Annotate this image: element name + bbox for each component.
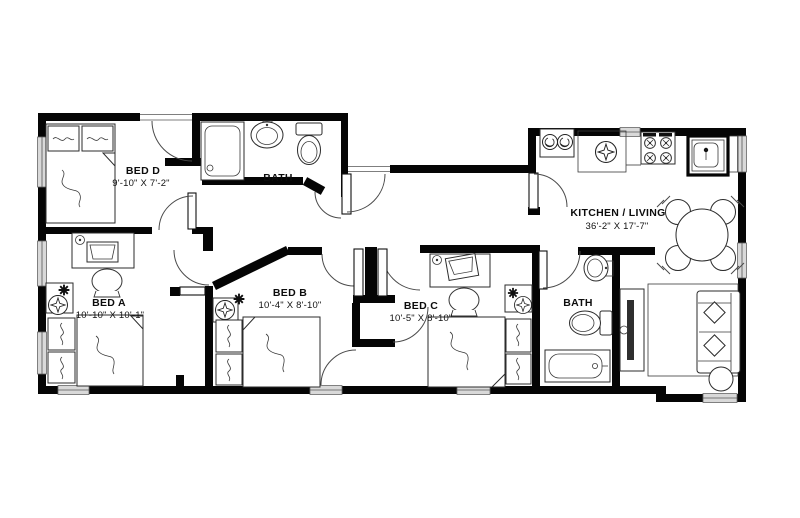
door-bed-b	[322, 254, 354, 286]
label-bed-d: BED D	[126, 165, 160, 177]
door-bed-d-inner	[159, 193, 196, 230]
stove-icon	[641, 132, 675, 164]
side-table-icon	[213, 294, 244, 322]
bed-icon	[428, 317, 531, 387]
toilet-icon	[570, 311, 613, 335]
bathtub-icon	[545, 350, 610, 382]
window-icon	[738, 243, 747, 278]
window-icon	[620, 128, 640, 137]
living-area	[620, 284, 740, 391]
bed-icon	[48, 315, 143, 386]
label-bed-a: BED A	[92, 297, 126, 309]
cooktop-fan-icon	[596, 142, 617, 163]
plant-icon	[234, 294, 245, 305]
door-bath-right	[539, 251, 580, 289]
room-bath-top	[201, 121, 322, 180]
floor-plan: BED D 9'-10" X 7'-2" BATH BED A 10'-10" …	[0, 0, 800, 518]
door-kitchen	[529, 173, 567, 209]
sink-icon	[584, 255, 613, 281]
door-bath-top	[315, 192, 341, 218]
side-table-icon	[505, 285, 532, 314]
washer-dryer-icon	[540, 129, 574, 157]
dims-bed-d: 9'-10" X 7'-2"	[112, 178, 170, 189]
side-table-icon	[46, 283, 73, 315]
ceiling-fan-icon	[515, 297, 532, 314]
toilet-icon	[296, 123, 322, 165]
door-unit-entry	[342, 167, 390, 215]
room-bath-right	[545, 255, 613, 382]
shower-icon	[201, 122, 244, 180]
ceiling-fan-icon	[216, 301, 235, 320]
label-bath-top: BATH	[263, 172, 293, 184]
label-bed-c: BED C	[404, 300, 438, 312]
side-table-icon	[709, 367, 733, 391]
bed-icon	[46, 124, 115, 223]
desk-icon	[430, 254, 490, 316]
door-bed-d-entry	[140, 115, 192, 162]
bed-icon	[216, 317, 320, 387]
tv-console-icon	[620, 289, 644, 371]
window-icon	[58, 386, 89, 395]
door-bed-c	[382, 252, 420, 290]
dims-bed-b: 10'-4" X 8'-10"	[258, 300, 321, 311]
window-icon	[38, 332, 47, 374]
ceiling-fan-icon	[49, 296, 68, 315]
dims-bed-a: 10'-10" X 10'-1"	[76, 310, 145, 321]
dining-table-icon	[676, 209, 728, 261]
sink-icon	[251, 121, 283, 148]
dims-bed-c: 10'-5" X 8'-10"	[389, 313, 452, 324]
dims-kitchen-living: 36'-2" X 17'-7"	[585, 221, 648, 232]
door-closet-bed-b	[321, 350, 356, 385]
sofa-icon	[697, 291, 740, 373]
room-bed-d	[46, 124, 115, 223]
desk-icon	[72, 233, 134, 297]
window-icon	[38, 137, 47, 187]
floor-plan-canvas: BED D 9'-10" X 7'-2" BATH BED A 10'-10" …	[0, 0, 800, 518]
window-icon	[38, 241, 47, 286]
label-bed-b: BED B	[273, 287, 307, 299]
dining-set	[657, 196, 744, 274]
label-bath-right: BATH	[563, 297, 593, 309]
window-icon	[738, 136, 747, 172]
label-kitchen-living: KITCHEN / LIVING	[570, 207, 665, 219]
window-icon	[703, 394, 737, 403]
kitchen-sink-icon	[688, 136, 728, 175]
